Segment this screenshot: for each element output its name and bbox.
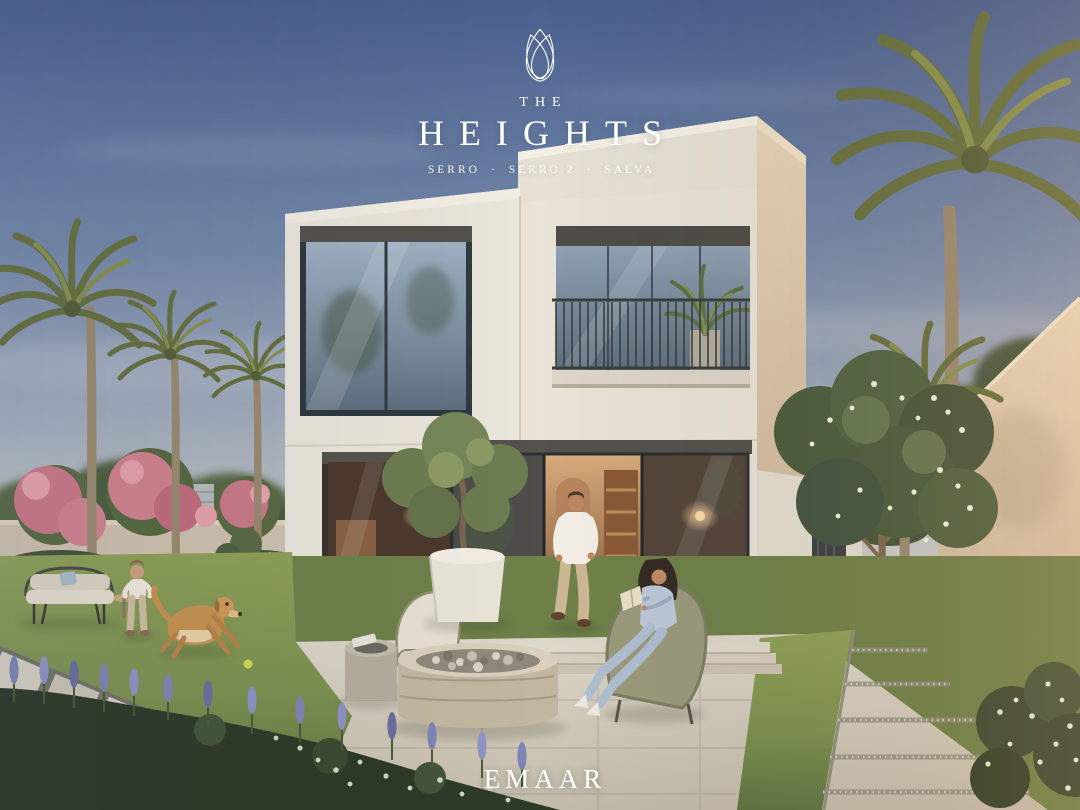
community-serro: SERRO [428,164,480,176]
separator-dot: · [586,164,593,176]
hero-image: THE HEIGHTS SERRO·SERRO 2·SALVA EMAAR [0,0,1080,810]
community-salva: SALVA [604,164,655,176]
community-serro-2: SERRO 2 [509,164,576,176]
brand-title: HEIGHTS [0,112,1080,154]
brand-logo-block: THE HEIGHTS SERRO·SERRO 2·SALVA [0,26,1080,176]
brand-pre-title: THE [0,95,1080,111]
emaar-wordmark: EMAAR [0,764,1080,795]
community-names: SERRO·SERRO 2·SALVA [0,164,1080,176]
heights-lotus-emblem-icon [517,26,563,86]
separator-dot: · [491,164,498,176]
